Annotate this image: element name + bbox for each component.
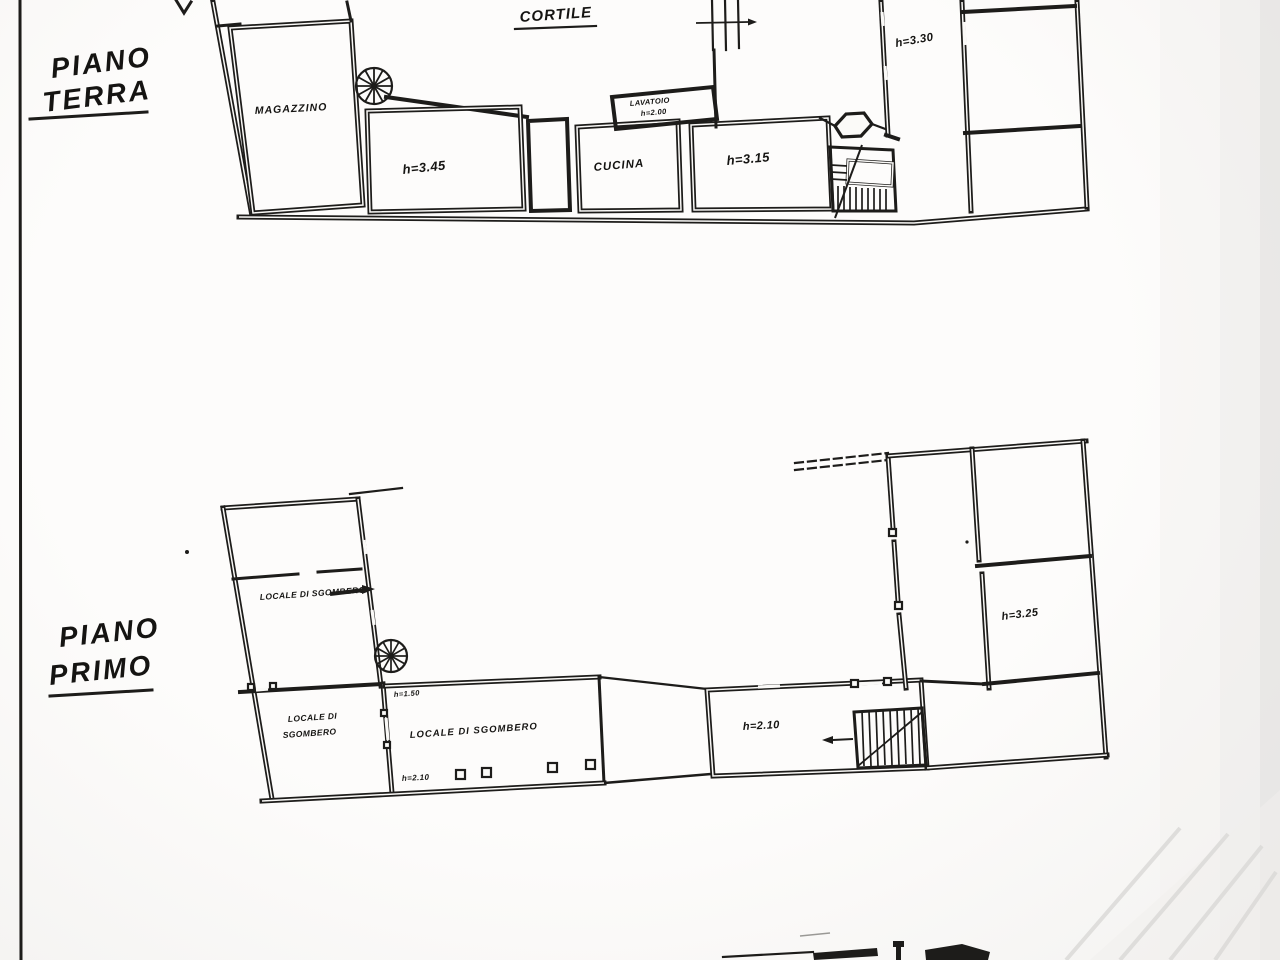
right-middle-wall [881,2,898,139]
right-wing-first-floor [795,441,1107,768]
floor-plan-drawing: PIANO TERRA [0,0,1280,960]
lavatoio-label-line2: h=2.00 [640,107,667,118]
right-edge-shading [1160,0,1220,960]
sheet-border-line [20,0,21,960]
courtyard-edge-top [599,677,707,689]
room-label-cortile: CORTILE [519,4,593,26]
cutoff-drawing-bottom [723,933,990,960]
scan-artifacts [20,0,1280,960]
title-underline-2 [50,690,152,696]
dimension-arrow [748,19,757,26]
room-h210-right [707,678,927,776]
stray-dot [185,550,189,554]
height-label-325: h=3.25 [1001,607,1040,623]
courtyard-edge-bottom [604,774,711,783]
room-h345 [367,107,524,212]
spiral-stair-icon-2 [375,640,407,672]
first-floor-plan: PIANO PRIMO LOCALE DI SGOMBERO [47,441,1107,801]
corridor [528,119,570,211]
direction-arrow [822,736,853,744]
room-label-magazzino: MAGAZZINO [255,101,328,117]
stair-treads [831,165,886,210]
height-label-210-right: h=2.10 [743,719,781,733]
left-wing-upper [223,488,402,799]
staircase-first-floor [854,708,926,768]
height-label-330: h=3.30 [894,31,934,50]
first-floor-title-line1: PIANO [57,612,161,653]
right-wing [962,2,1087,211]
check-mark [176,0,191,13]
room-label-storage-left-line2: SGOMBERO [282,726,336,740]
courtyard-walls [696,0,757,127]
height-label-315: h=3.15 [726,149,771,168]
ground-floor-plan: PIANO TERRA [30,0,1087,223]
first-floor-title-line2: PRIMO [47,649,154,691]
staircase-ground-floor [830,145,896,218]
room-label-storage-left-line1: LOCALE DI [287,711,337,724]
scanned-floor-plan-sheet: PIANO TERRA [0,0,1280,960]
height-label-150: h=1.50 [394,688,421,699]
height-label-345: h=3.45 [402,158,447,177]
height-label-210-main: h=2.10 [402,773,430,783]
room-label-cucina: CUCINA [593,158,645,174]
cortile-underline [515,26,596,29]
room-label-storage-main: LOCALE DI SGOMBERO [409,721,538,741]
stray-dot-2 [965,540,968,543]
